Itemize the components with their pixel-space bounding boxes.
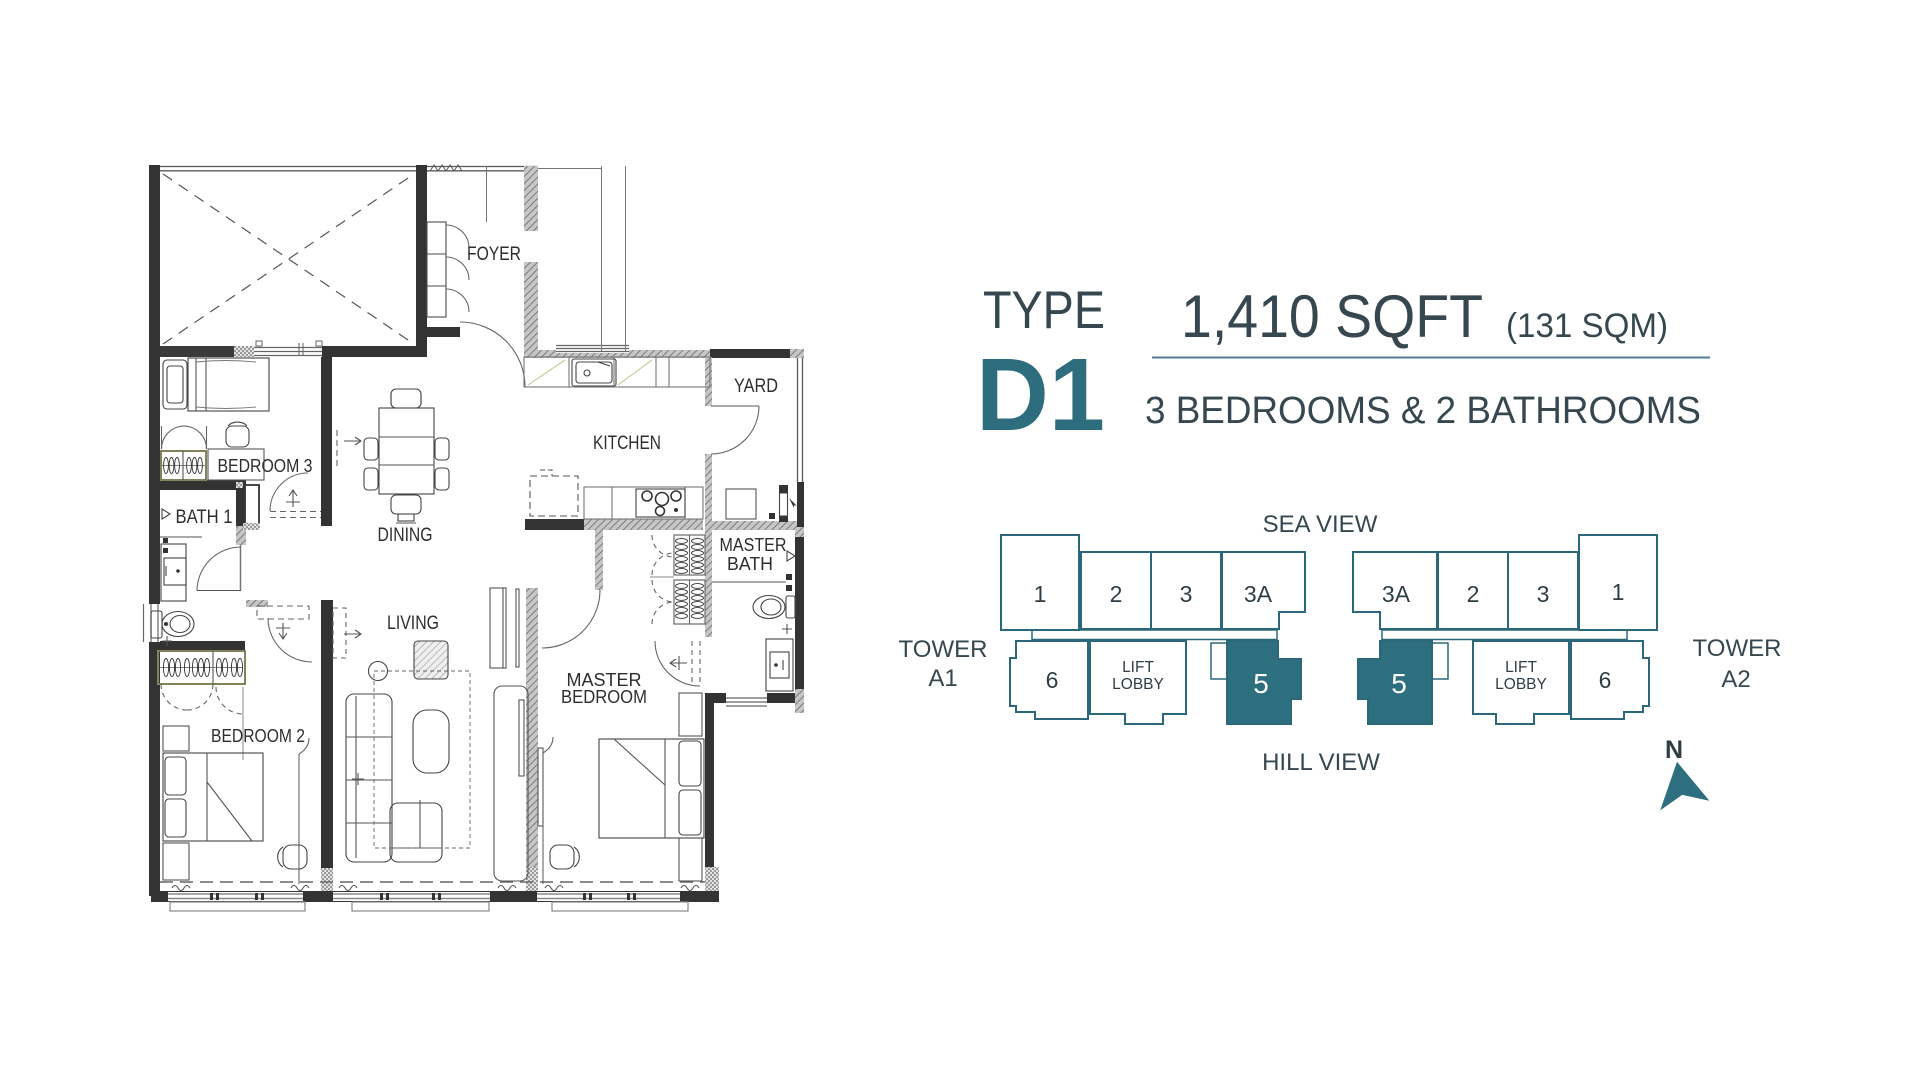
svg-text:SEA VIEW: SEA VIEW xyxy=(1263,511,1378,538)
svg-text:6: 6 xyxy=(1599,667,1612,693)
svg-text:3 BEDROOMS & 2 BATHROOMS: 3 BEDROOMS & 2 BATHROOMS xyxy=(1145,390,1701,432)
svg-text:TYPE: TYPE xyxy=(983,281,1105,340)
svg-text:LIVING: LIVING xyxy=(387,613,439,634)
svg-text:LOBBY: LOBBY xyxy=(1112,676,1164,693)
svg-text:6: 6 xyxy=(1046,667,1059,693)
svg-text:BATH: BATH xyxy=(727,554,773,574)
svg-text:2: 2 xyxy=(1467,581,1480,607)
svg-text:2: 2 xyxy=(1110,581,1123,607)
svg-text:BEDROOM 3: BEDROOM 3 xyxy=(218,456,313,476)
svg-text:3A: 3A xyxy=(1382,581,1411,607)
svg-text:FOYER: FOYER xyxy=(467,244,521,265)
svg-text:HILL VIEW: HILL VIEW xyxy=(1262,749,1380,776)
svg-text:TOWER: TOWER xyxy=(1693,635,1782,662)
svg-text:5: 5 xyxy=(1391,668,1407,699)
svg-text:1,410 SQFT: 1,410 SQFT xyxy=(1181,283,1483,350)
svg-text:MASTER: MASTER xyxy=(720,535,787,555)
svg-text:3: 3 xyxy=(1537,581,1550,607)
svg-text:5: 5 xyxy=(1253,668,1269,699)
svg-text:A2: A2 xyxy=(1721,666,1750,693)
svg-text:DINING: DINING xyxy=(378,525,433,546)
svg-text:N: N xyxy=(1665,736,1683,764)
svg-text:BEDROOM: BEDROOM xyxy=(561,687,647,707)
svg-text:3A: 3A xyxy=(1244,581,1273,607)
svg-text:(131 SQM): (131 SQM) xyxy=(1506,307,1668,345)
svg-text:3: 3 xyxy=(1180,581,1193,607)
svg-text:1: 1 xyxy=(1034,581,1047,607)
svg-text:1: 1 xyxy=(1612,579,1625,605)
svg-text:A1: A1 xyxy=(928,665,957,692)
svg-text:LIFT: LIFT xyxy=(1505,659,1537,676)
svg-text:BATH 1: BATH 1 xyxy=(176,507,233,528)
svg-text:LOBBY: LOBBY xyxy=(1495,676,1547,693)
svg-text:KITCHEN: KITCHEN xyxy=(593,433,661,454)
svg-text:TOWER: TOWER xyxy=(899,636,988,663)
svg-text:BEDROOM 2: BEDROOM 2 xyxy=(211,726,305,746)
svg-text:LIFT: LIFT xyxy=(1122,659,1154,676)
svg-text:YARD: YARD xyxy=(734,376,778,397)
svg-text:D1: D1 xyxy=(976,337,1105,452)
